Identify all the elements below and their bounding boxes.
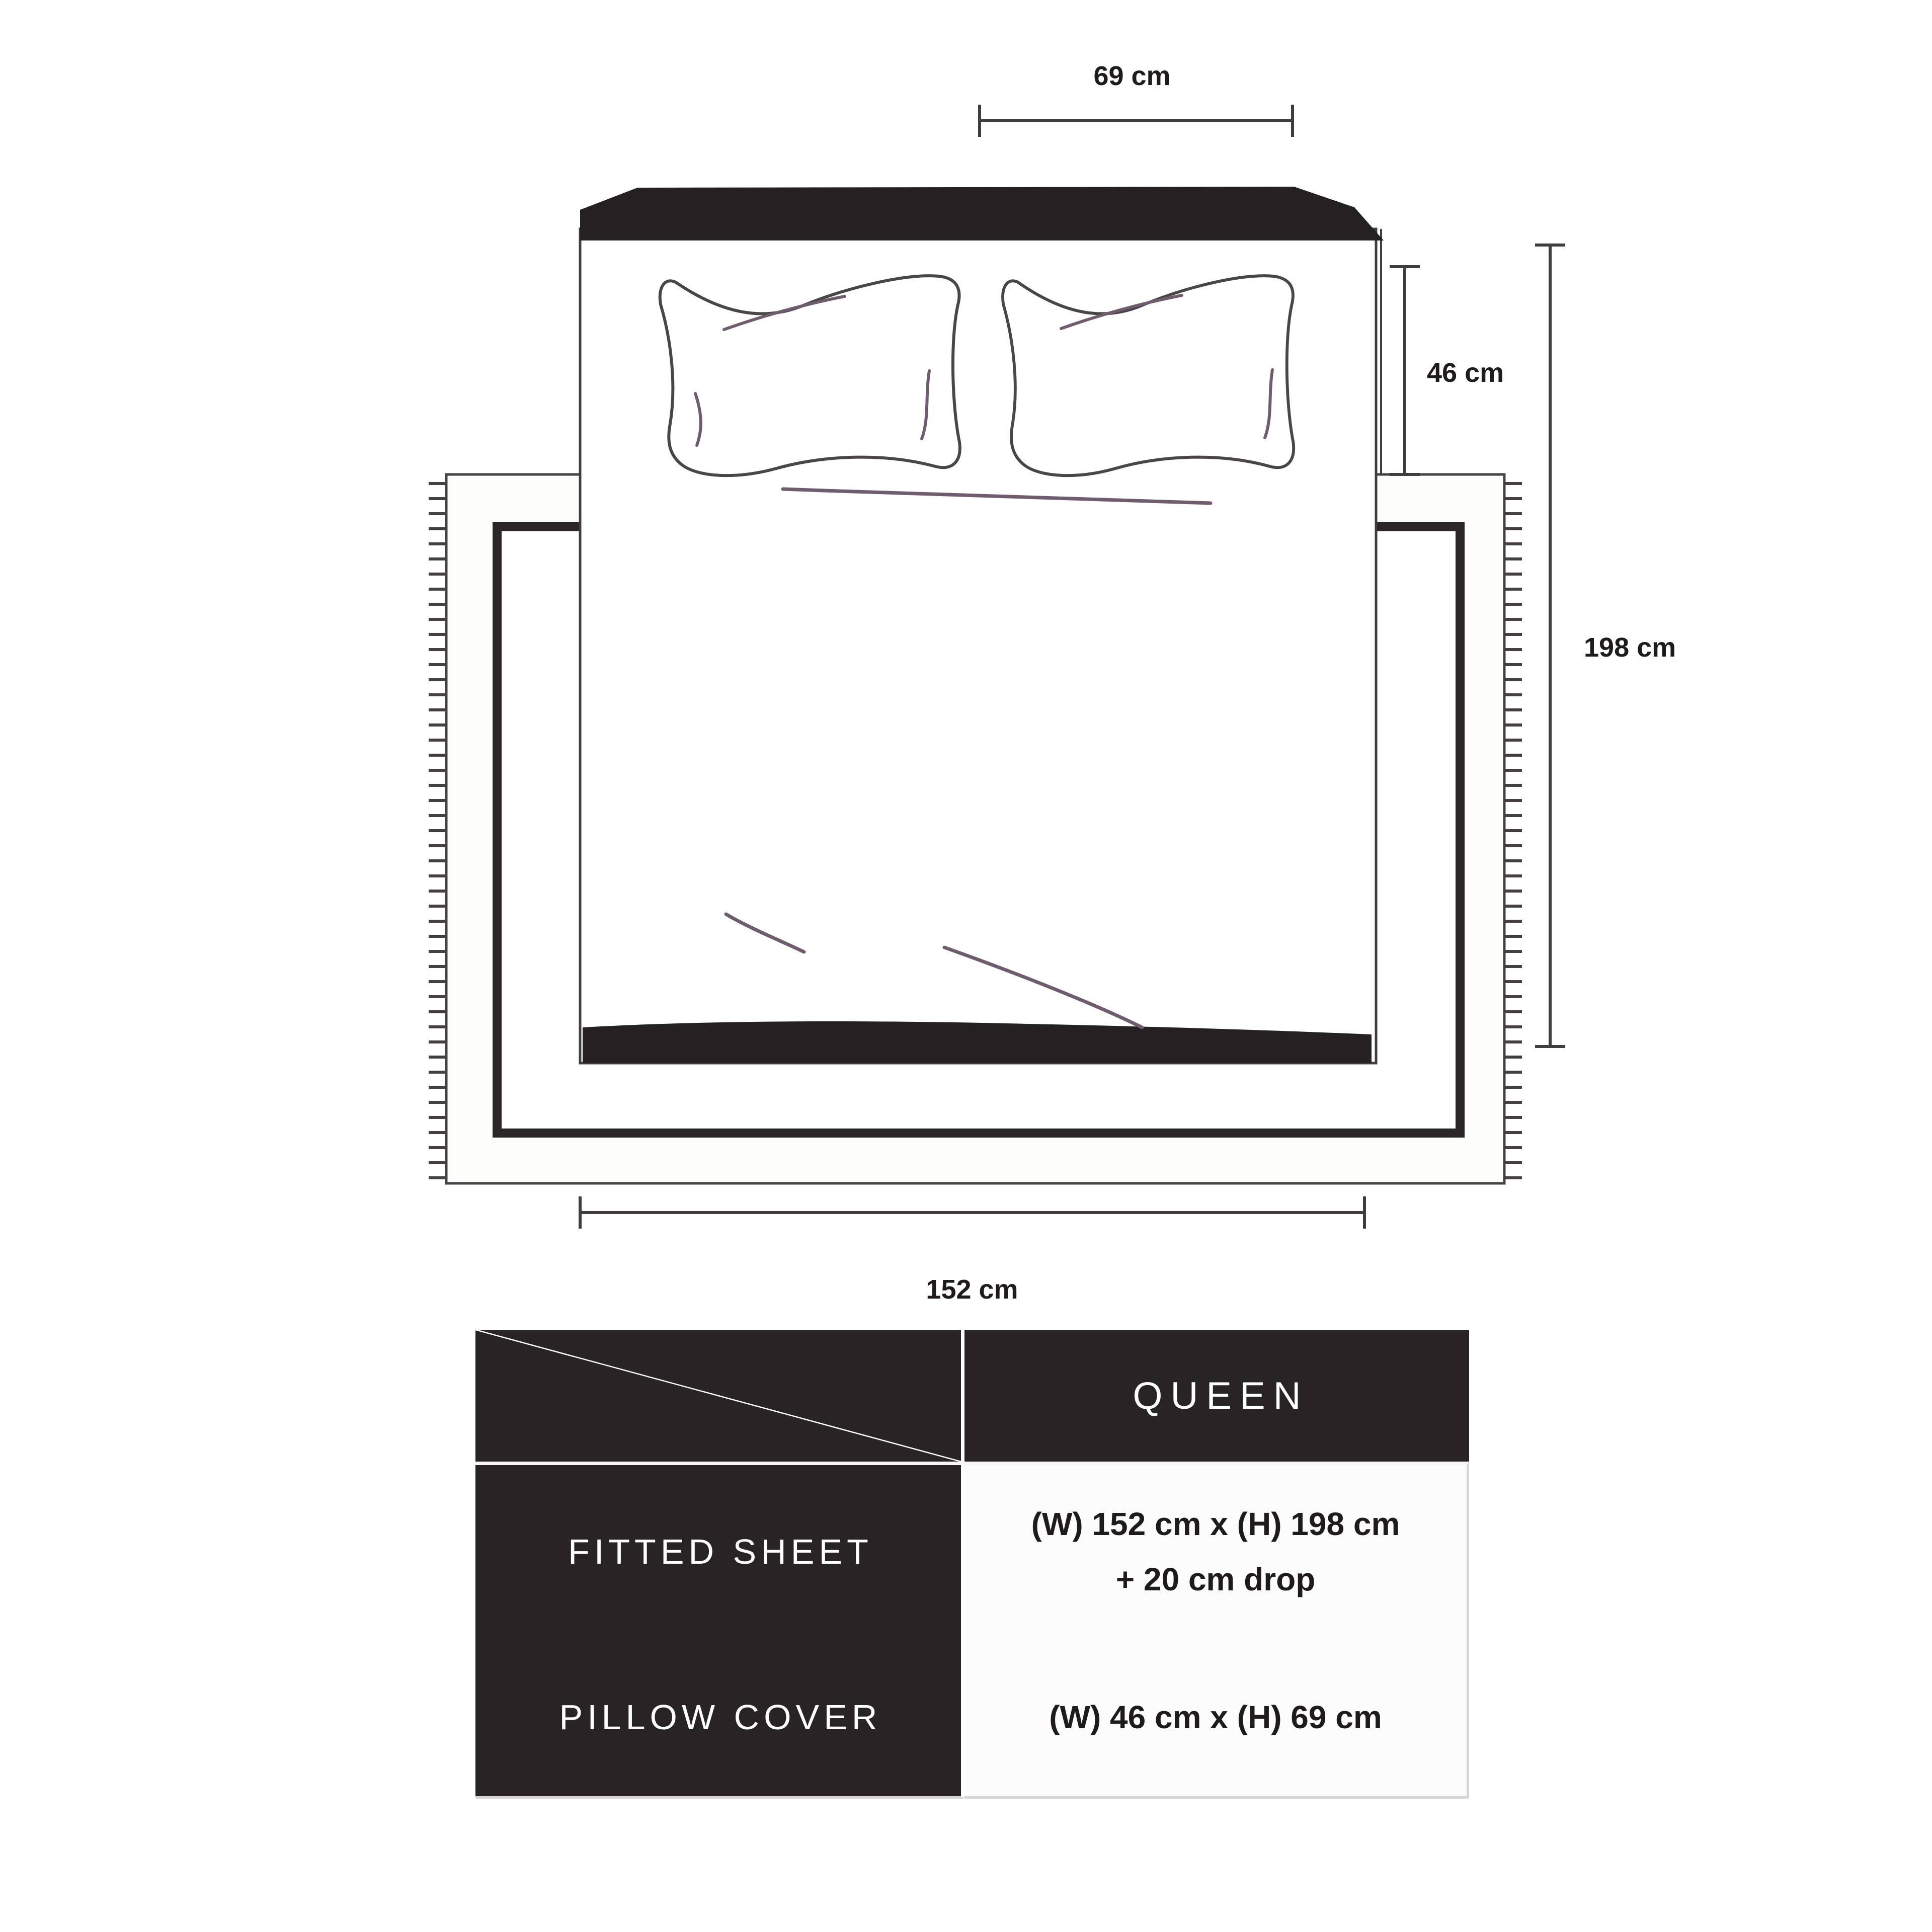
table-row-fitted-sheet-value: (W) 152 cm x (H) 198 cm + 20 cm drop: [964, 1462, 1469, 1638]
label-pillow-height: 46 cm: [1427, 357, 1504, 388]
table-corner-cell: [475, 1330, 964, 1462]
label-bed-width: 152 cm: [871, 1274, 1073, 1305]
fitted-sheet-value-line2: + 20 cm drop: [1031, 1552, 1400, 1607]
fitted-sheet-value-line1: (W) 152 cm x (H) 198 cm: [1031, 1496, 1400, 1552]
pillow-right: [1003, 276, 1294, 475]
table-row-pillow-cover-label: PILLOW COVER: [475, 1638, 964, 1799]
table-row-fitted-sheet-label: FITTED SHEET: [475, 1462, 964, 1638]
table-row-pillow-cover-value: (W) 46 cm x (H) 69 cm: [964, 1638, 1469, 1799]
fitted-sheet-label: FITTED SHEET: [563, 1532, 873, 1572]
label-bed-length: 198 cm: [1584, 632, 1676, 663]
pillow-cover-label: PILLOW COVER: [555, 1697, 882, 1737]
headboard: [580, 187, 1384, 240]
size-table: QUEEN FITTED SHEET (W) 152 cm x (H) 198 …: [475, 1330, 1469, 1799]
queen-header-label: QUEEN: [1124, 1374, 1309, 1418]
table-header-queen: QUEEN: [964, 1330, 1469, 1462]
label-pillow-width: 69 cm: [1031, 60, 1233, 92]
pillow-left: [660, 276, 960, 475]
bedding-size-diagram-page: 69 cm 46 cm 198 cm 152 cm QUEEN FITTED S…: [0, 0, 1932, 1932]
bed-diagram: [0, 0, 1932, 1333]
corner-diagonal-line: [475, 1330, 961, 1462]
pillow-cover-value-line1: (W) 46 cm x (H) 69 cm: [1049, 1689, 1382, 1745]
